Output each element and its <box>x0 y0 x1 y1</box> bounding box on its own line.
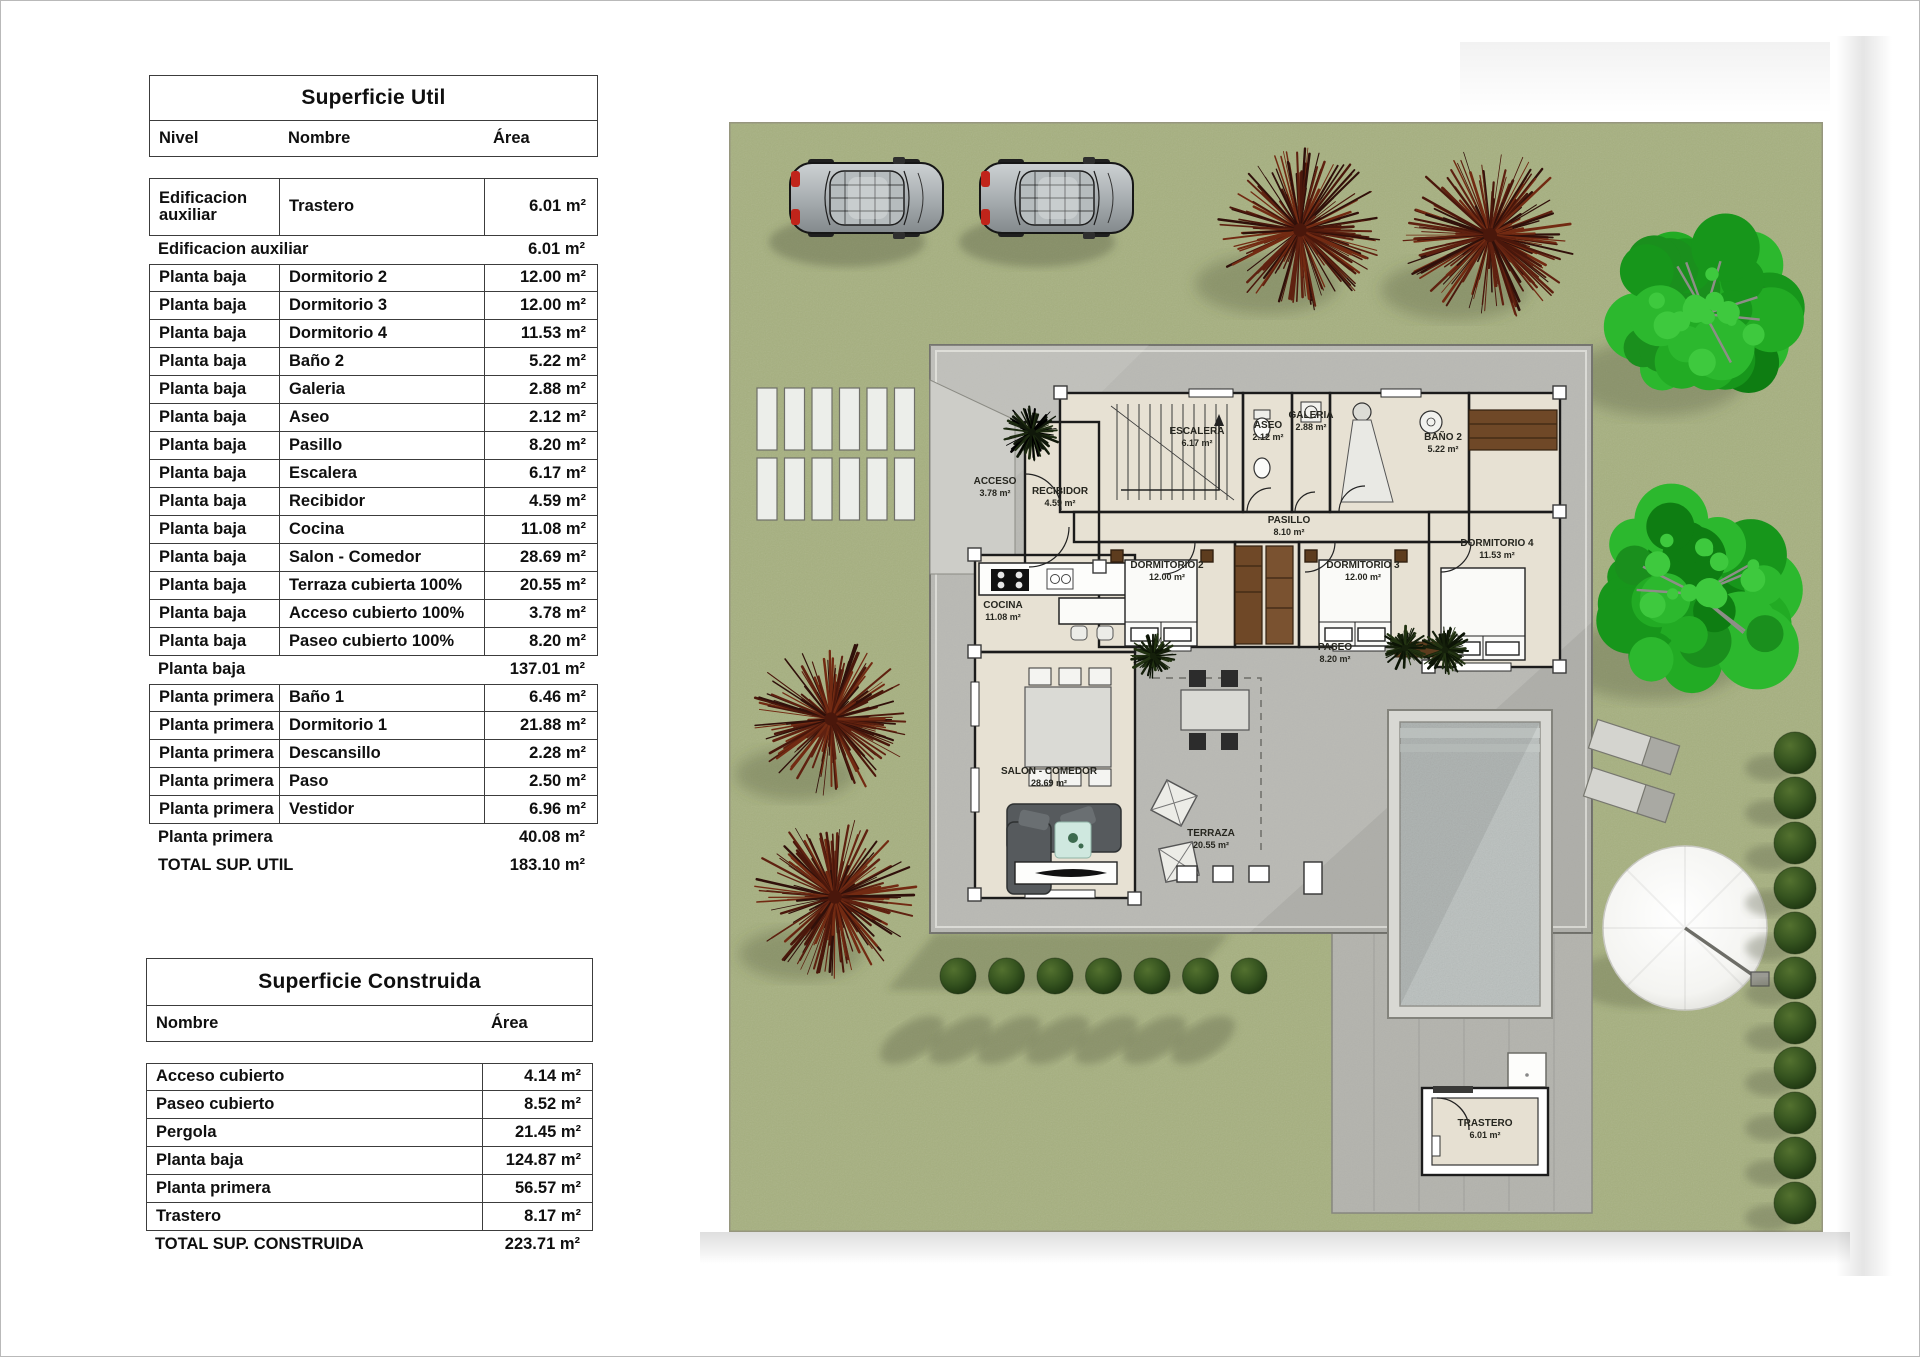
cell-nombre: Paso <box>279 768 484 795</box>
cell-area: 8.52 m² <box>482 1091 592 1118</box>
cell-area: 137.01 m² <box>483 656 596 684</box>
cell-nivel: Planta baja <box>150 488 279 515</box>
table-title: Superficie Construida <box>146 958 593 1006</box>
cell-nombre: Dormitorio 4 <box>279 320 484 347</box>
cell-nivel: Planta baja <box>150 376 279 403</box>
room-name: TRASTERO <box>1458 1118 1513 1129</box>
room-area: 2.12 m² <box>1252 432 1283 442</box>
table-row: Planta baja Baño 2 5.22 m² <box>149 348 598 376</box>
cell-area: 2.28 m² <box>484 740 597 767</box>
table-row: TOTAL SUP. CONSTRUIDA 223.71 m² <box>146 1231 593 1259</box>
cell-nivel: Planta baja <box>150 320 279 347</box>
table-row: Planta baja Aseo 2.12 m² <box>149 404 598 432</box>
car <box>980 157 1133 239</box>
room-name: PASEO <box>1318 642 1352 653</box>
table-row: Planta baja 124.87 m² <box>146 1147 593 1175</box>
cell-nivel: Planta baja <box>150 628 279 655</box>
table-row: Planta primera 40.08 m² <box>149 824 598 852</box>
cell-nivel: Planta primera <box>150 685 279 711</box>
table-body: Acceso cubierto 4.14 m² Paseo cubierto 8… <box>146 1063 593 1259</box>
room-area: 6.01 m² <box>1469 1130 1500 1140</box>
cell-area: 21.45 m² <box>482 1119 592 1146</box>
cell-nivel: Planta baja <box>150 572 279 599</box>
room-area: 11.53 m² <box>1479 550 1515 560</box>
room-name: ESCALERA <box>1169 426 1224 437</box>
cell-nombre: Baño 1 <box>279 685 484 711</box>
room-area: 20.55 m² <box>1193 840 1229 850</box>
table-row: Planta primera 56.57 m² <box>146 1175 593 1203</box>
room-name: PASILLO <box>1268 515 1311 526</box>
room-name: COCINA <box>983 600 1022 611</box>
room-name: ASEO <box>1254 420 1283 431</box>
cell-nombre: Aseo <box>279 404 484 431</box>
cell-nombre: Cocina <box>279 516 484 543</box>
table-row: Planta primera Vestidor 6.96 m² <box>149 796 598 824</box>
room-label: BAÑO 2 5.22 m² <box>1424 430 1462 454</box>
cell-area: 4.59 m² <box>484 488 597 515</box>
cell-area: 5.22 m² <box>484 348 597 375</box>
cell-nombre <box>278 824 483 852</box>
cell-nivel: Edificacion auxiliar <box>150 179 279 235</box>
cell-nombre: Recibidor <box>279 488 484 515</box>
car <box>790 157 943 239</box>
table-row: Edificacion auxiliar Trastero 6.01 m² <box>149 178 598 236</box>
cell-area: 223.71 m² <box>481 1231 591 1259</box>
cell-area: 2.88 m² <box>484 376 597 403</box>
table-row: Planta baja Cocina 11.08 m² <box>149 516 598 544</box>
room-area: 11.08 m² <box>985 612 1021 622</box>
room-area: 8.20 m² <box>1319 654 1350 664</box>
cell-area: 11.08 m² <box>484 516 597 543</box>
cell-area: 183.10 m² <box>483 852 596 880</box>
cell-nombre: Paseo cubierto <box>147 1091 482 1118</box>
superficie-util-table: Superficie Util Nivel Nombre Área Edific… <box>149 75 598 880</box>
cell-area: 2.50 m² <box>484 768 597 795</box>
cell-area: 12.00 m² <box>484 292 597 319</box>
table-row: Edificacion auxiliar 6.01 m² <box>149 236 598 264</box>
cell-area: 4.14 m² <box>482 1064 592 1090</box>
cell-nombre: Galeria <box>279 376 484 403</box>
cell-nombre: Dormitorio 1 <box>279 712 484 739</box>
table-row: Planta baja Galeria 2.88 m² <box>149 376 598 404</box>
table-row: Paseo cubierto 8.52 m² <box>146 1091 593 1119</box>
table-row: Planta primera Descansillo 2.28 m² <box>149 740 598 768</box>
cell-nombre: Terraza cubierta 100% <box>279 572 484 599</box>
table-row: Planta primera Dormitorio 1 21.88 m² <box>149 712 598 740</box>
cell-nivel: Planta primera <box>150 712 279 739</box>
table-row: Planta primera Paso 2.50 m² <box>149 768 598 796</box>
room-area: 12.00 m² <box>1149 572 1185 582</box>
cell-nombre: Escalera <box>279 460 484 487</box>
cell-nombre: Dormitorio 2 <box>279 265 484 291</box>
cell-area: 56.57 m² <box>482 1175 592 1202</box>
cell-area: 6.46 m² <box>484 685 597 711</box>
cell-area: 3.78 m² <box>484 600 597 627</box>
pool <box>1388 710 1552 1018</box>
room-name: DORMITORIO 4 <box>1460 538 1534 549</box>
col-header-area: Área <box>482 1006 592 1041</box>
cell-nivel: Planta primera <box>149 824 278 852</box>
cell-nombre: Descansillo <box>279 740 484 767</box>
room-name: GALERIA <box>1289 410 1334 421</box>
table-row: Planta baja Terraza cubierta 100% 20.55 … <box>149 572 598 600</box>
room-area: 12.00 m² <box>1345 572 1381 582</box>
room-name: RECIBIDOR <box>1032 486 1089 497</box>
cell-nivel: Planta baja <box>150 348 279 375</box>
table-body: Edificacion auxiliar Trastero 6.01 m² Ed… <box>149 178 598 880</box>
cell-nivel: Planta baja <box>150 404 279 431</box>
table-row: Planta baja Dormitorio 3 12.00 m² <box>149 292 598 320</box>
cell-nombre <box>278 236 483 264</box>
parasol <box>1603 846 1769 1010</box>
table-row: Planta baja Acceso cubierto 100% 3.78 m² <box>149 600 598 628</box>
cell-nombre: Acceso cubierto 100% <box>279 600 484 627</box>
col-header-nombre: Nombre <box>147 1006 482 1041</box>
page: { "tables": { "util": { "title": "Superf… <box>0 0 1920 1357</box>
table-header-row: Nivel Nombre Área <box>149 121 598 157</box>
cell-nombre: Baño 2 <box>279 348 484 375</box>
room-area: 2.88 m² <box>1295 422 1326 432</box>
room-area: 5.22 m² <box>1427 444 1458 454</box>
table-row: Planta baja Salon - Comedor 28.69 m² <box>149 544 598 572</box>
page-shadow-bottom <box>700 1232 1850 1264</box>
cell-area: 6.96 m² <box>484 796 597 823</box>
table-row: Planta primera Baño 1 6.46 m² <box>149 684 598 712</box>
cell-area: 11.53 m² <box>484 320 597 347</box>
table-row: Planta baja 137.01 m² <box>149 656 598 684</box>
cell-area: 8.17 m² <box>482 1203 592 1230</box>
cell-nivel: TOTAL SUP. UTIL <box>149 852 278 880</box>
table-header-row: Nombre Área <box>146 1006 593 1042</box>
room-name: SALON - COMEDOR <box>1001 766 1098 777</box>
col-header-area: Área <box>484 121 597 156</box>
cell-area: 6.17 m² <box>484 460 597 487</box>
table-row: Planta baja Paseo cubierto 100% 8.20 m² <box>149 628 598 656</box>
cell-nivel: Planta baja <box>150 600 279 627</box>
table-title: Superficie Util <box>149 75 598 121</box>
cell-nivel: Planta baja <box>150 544 279 571</box>
col-header-nombre: Nombre <box>279 121 484 156</box>
cell-nombre: Pergola <box>147 1119 482 1146</box>
cell-area: 12.00 m² <box>484 265 597 291</box>
room-area: 3.78 m² <box>979 488 1010 498</box>
cell-nivel: Planta baja <box>150 265 279 291</box>
cell-nombre: Vestidor <box>279 796 484 823</box>
cell-nombre <box>278 852 483 880</box>
cell-nivel: Edificacion auxiliar <box>149 236 278 264</box>
room-name: TERRAZA <box>1187 828 1235 839</box>
cell-nombre: Dormitorio 3 <box>279 292 484 319</box>
page-shadow-top <box>1460 42 1830 114</box>
cell-nivel: Planta baja <box>150 460 279 487</box>
table-row: Trastero 8.17 m² <box>146 1203 593 1231</box>
cell-nivel: Planta baja <box>150 516 279 543</box>
col-header-nivel: Nivel <box>150 121 279 156</box>
room-area: 4.59 m² <box>1044 498 1075 508</box>
cell-nombre: Trastero <box>279 179 484 235</box>
cell-area: 2.12 m² <box>484 404 597 431</box>
room-name: BAÑO 2 <box>1424 430 1462 443</box>
cell-area: 8.20 m² <box>484 628 597 655</box>
site-plan: ACCESO 3.78 m² RECIBIDOR 4.59 m² ESCALER… <box>729 122 1823 1232</box>
cell-area: 21.88 m² <box>484 712 597 739</box>
table-row: TOTAL SUP. UTIL 183.10 m² <box>149 852 598 880</box>
cell-nombre: Trastero <box>147 1203 482 1230</box>
cell-nombre: Paseo cubierto 100% <box>279 628 484 655</box>
table-row: Acceso cubierto 4.14 m² <box>146 1063 593 1091</box>
table-row: Planta baja Dormitorio 2 12.00 m² <box>149 264 598 292</box>
cell-nombre: TOTAL SUP. CONSTRUIDA <box>146 1231 481 1259</box>
room-name: ACCESO <box>974 476 1017 487</box>
table-row: Planta baja Dormitorio 4 11.53 m² <box>149 320 598 348</box>
room-name: DORMITORIO 2 <box>1130 560 1204 571</box>
cell-nivel: Planta primera <box>150 796 279 823</box>
cell-nombre: Salon - Comedor <box>279 544 484 571</box>
cell-nivel: Planta baja <box>149 656 278 684</box>
table-row: Planta baja Escalera 6.17 m² <box>149 460 598 488</box>
page-shadow-right <box>1836 36 1892 1276</box>
cell-nivel: Planta primera <box>150 740 279 767</box>
cell-area: 20.55 m² <box>484 572 597 599</box>
room-name: DORMITORIO 3 <box>1326 560 1400 571</box>
cell-nombre: Planta baja <box>147 1147 482 1174</box>
cell-nivel: Planta baja <box>150 292 279 319</box>
cell-area: 40.08 m² <box>483 824 596 852</box>
cell-area: 6.01 m² <box>484 179 597 235</box>
table-gap <box>146 1042 593 1063</box>
cell-area: 8.20 m² <box>484 432 597 459</box>
table-gap <box>149 157 598 178</box>
room-area: 28.69 m² <box>1031 778 1067 788</box>
cell-nivel: Planta primera <box>150 768 279 795</box>
superficie-construida-table: Superficie Construida Nombre Área Acceso… <box>146 958 593 1259</box>
table-row: Planta baja Pasillo 8.20 m² <box>149 432 598 460</box>
room-area: 6.17 m² <box>1181 438 1212 448</box>
cell-area: 124.87 m² <box>482 1147 592 1174</box>
cell-nombre: Planta primera <box>147 1175 482 1202</box>
table-row: Pergola 21.45 m² <box>146 1119 593 1147</box>
cell-nombre: Acceso cubierto <box>147 1064 482 1090</box>
cell-area: 28.69 m² <box>484 544 597 571</box>
room-area: 8.10 m² <box>1273 527 1304 537</box>
cell-nombre <box>278 656 483 684</box>
cell-nivel: Planta baja <box>150 432 279 459</box>
table-row: Planta baja Recibidor 4.59 m² <box>149 488 598 516</box>
cell-nombre: Pasillo <box>279 432 484 459</box>
cell-area: 6.01 m² <box>483 236 596 264</box>
